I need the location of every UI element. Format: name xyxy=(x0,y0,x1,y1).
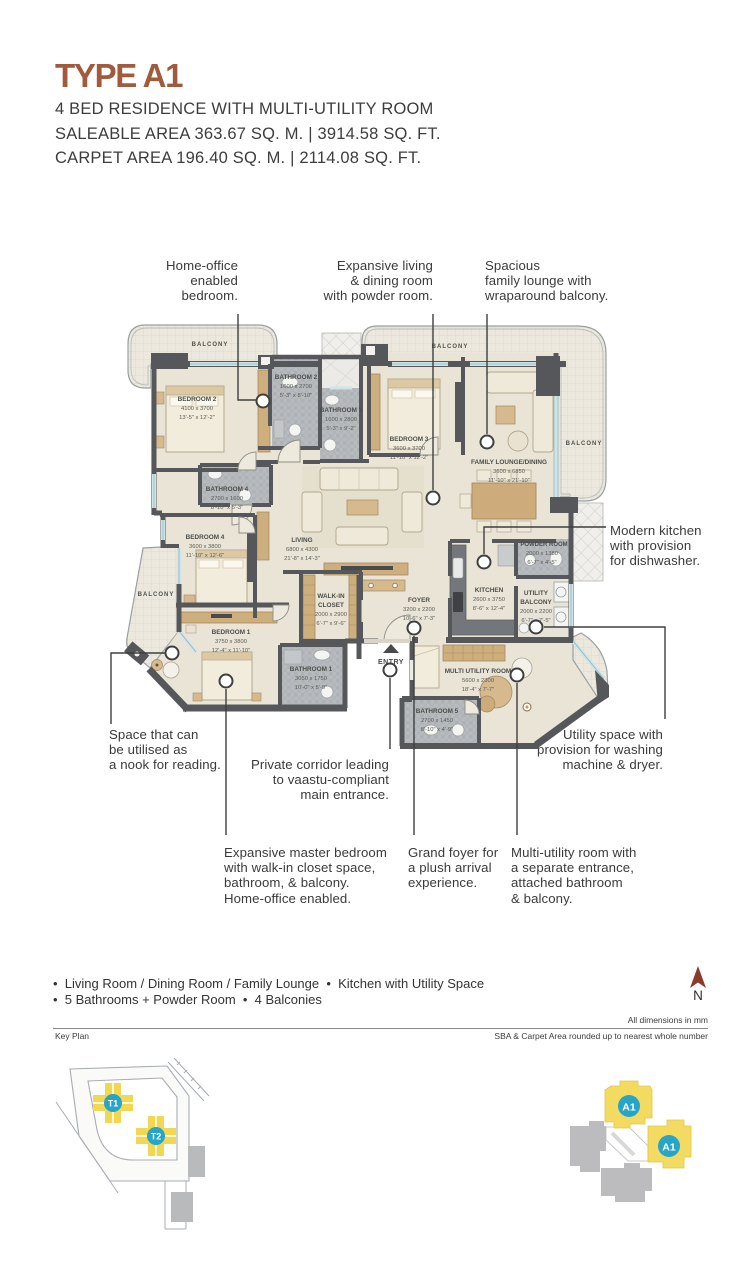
svg-text:6'-7" x 9'-6": 6'-7" x 9'-6" xyxy=(316,621,345,627)
svg-text:12'-4" x 11'-10": 12'-4" x 11'-10" xyxy=(212,648,250,654)
svg-text:4100 x 3700: 4100 x 3700 xyxy=(181,406,213,412)
svg-text:MULTI UTILITY ROOM: MULTI UTILITY ROOM xyxy=(445,668,512,675)
svg-text:BATHROOM 4: BATHROOM 4 xyxy=(206,486,249,493)
svg-text:BEDROOM 3: BEDROOM 3 xyxy=(390,436,429,443)
svg-text:11'-10" x 12'-2": 11'-10" x 12'-2" xyxy=(390,455,428,461)
svg-text:6'-7" x 4'-5": 6'-7" x 4'-5" xyxy=(527,560,556,566)
svg-text:2700 x 1600: 2700 x 1600 xyxy=(211,496,243,502)
svg-text:BEDROOM 1: BEDROOM 1 xyxy=(212,629,251,636)
svg-text:T1: T1 xyxy=(108,1099,119,1109)
svg-text:5'-3" x 9'-2": 5'-3" x 9'-2" xyxy=(326,426,355,432)
svg-text:KITCHEN: KITCHEN xyxy=(475,587,504,594)
svg-text:WALK-IN: WALK-IN xyxy=(317,593,345,600)
svg-text:1600 x 2800: 1600 x 2800 xyxy=(325,417,357,423)
svg-text:5600 x 2300: 5600 x 2300 xyxy=(462,678,494,684)
svg-text:BATHROOM 1: BATHROOM 1 xyxy=(290,666,333,673)
svg-text:18'-4" x 7'-7": 18'-4" x 7'-7" xyxy=(462,687,494,693)
svg-text:FAMILY LOUNGE/DINING: FAMILY LOUNGE/DINING xyxy=(471,459,547,466)
svg-text:3600 x 3800: 3600 x 3800 xyxy=(189,544,221,550)
svg-text:11'-10" x 21'-10": 11'-10" x 21'-10" xyxy=(488,478,530,484)
svg-text:BALCONY: BALCONY xyxy=(566,441,603,447)
svg-text:2000 x 2200: 2000 x 2200 xyxy=(520,609,552,615)
svg-text:UTILITY: UTILITY xyxy=(524,590,549,597)
svg-text:BALCONY: BALCONY xyxy=(432,344,469,350)
svg-text:1600 x 2700: 1600 x 2700 xyxy=(280,384,312,390)
svg-text:A1: A1 xyxy=(622,1102,636,1114)
svg-text:LIVING: LIVING xyxy=(291,537,312,544)
svg-text:2000 x 1380: 2000 x 1380 xyxy=(526,551,558,557)
svg-text:FOYER: FOYER xyxy=(408,597,430,604)
svg-text:T2: T2 xyxy=(151,1132,162,1142)
svg-text:21'-8" x 14'-3": 21'-8" x 14'-3" xyxy=(284,556,320,562)
svg-text:3600 x 3700: 3600 x 3700 xyxy=(393,446,425,452)
svg-text:3200 x 2200: 3200 x 2200 xyxy=(403,607,435,613)
svg-text:5'-3" x 8'-10": 5'-3" x 8'-10" xyxy=(280,393,312,399)
svg-text:10'-6" x 7'-3": 10'-6" x 7'-3" xyxy=(403,616,435,622)
svg-text:11'-10" x 12'-6": 11'-10" x 12'-6" xyxy=(186,553,224,559)
svg-text:CLOSET: CLOSET xyxy=(318,602,344,609)
svg-text:8'-10" x 4'-9": 8'-10" x 4'-9" xyxy=(421,727,453,733)
svg-text:2600 x 3750: 2600 x 3750 xyxy=(473,597,505,603)
svg-text:BEDROOM 2: BEDROOM 2 xyxy=(178,396,217,403)
svg-text:BEDROOM 4: BEDROOM 4 xyxy=(186,534,225,541)
svg-text:BATHROOM 5: BATHROOM 5 xyxy=(416,708,459,715)
svg-text:BALCONY: BALCONY xyxy=(192,342,229,348)
svg-text:3050 x 1750: 3050 x 1750 xyxy=(295,676,327,682)
svg-text:BALCONY: BALCONY xyxy=(520,599,552,606)
svg-text:8'-10" x 5'-3": 8'-10" x 5'-3" xyxy=(211,505,243,511)
svg-text:2000 x 2900: 2000 x 2900 xyxy=(315,612,347,618)
svg-text:3750 x 3800: 3750 x 3800 xyxy=(215,639,247,645)
svg-text:BALCONY: BALCONY xyxy=(138,592,175,598)
svg-text:13'-5" x 12'-2": 13'-5" x 12'-2" xyxy=(179,415,215,421)
svg-text:10'-0" x 5'-9": 10'-0" x 5'-9" xyxy=(295,685,327,691)
svg-text:BATHROOM 2: BATHROOM 2 xyxy=(275,374,318,381)
svg-text:3600 x 6850: 3600 x 6850 xyxy=(493,469,525,475)
svg-text:8'-6" x 12'-4": 8'-6" x 12'-4" xyxy=(473,606,505,612)
svg-text:2700 x 1450: 2700 x 1450 xyxy=(421,718,453,724)
svg-text:POWDER ROOM: POWDER ROOM xyxy=(520,542,567,548)
svg-text:6800 x 4300: 6800 x 4300 xyxy=(286,547,318,553)
svg-text:A1: A1 xyxy=(662,1142,676,1154)
svg-text:BATHROOM 3: BATHROOM 3 xyxy=(320,407,363,414)
